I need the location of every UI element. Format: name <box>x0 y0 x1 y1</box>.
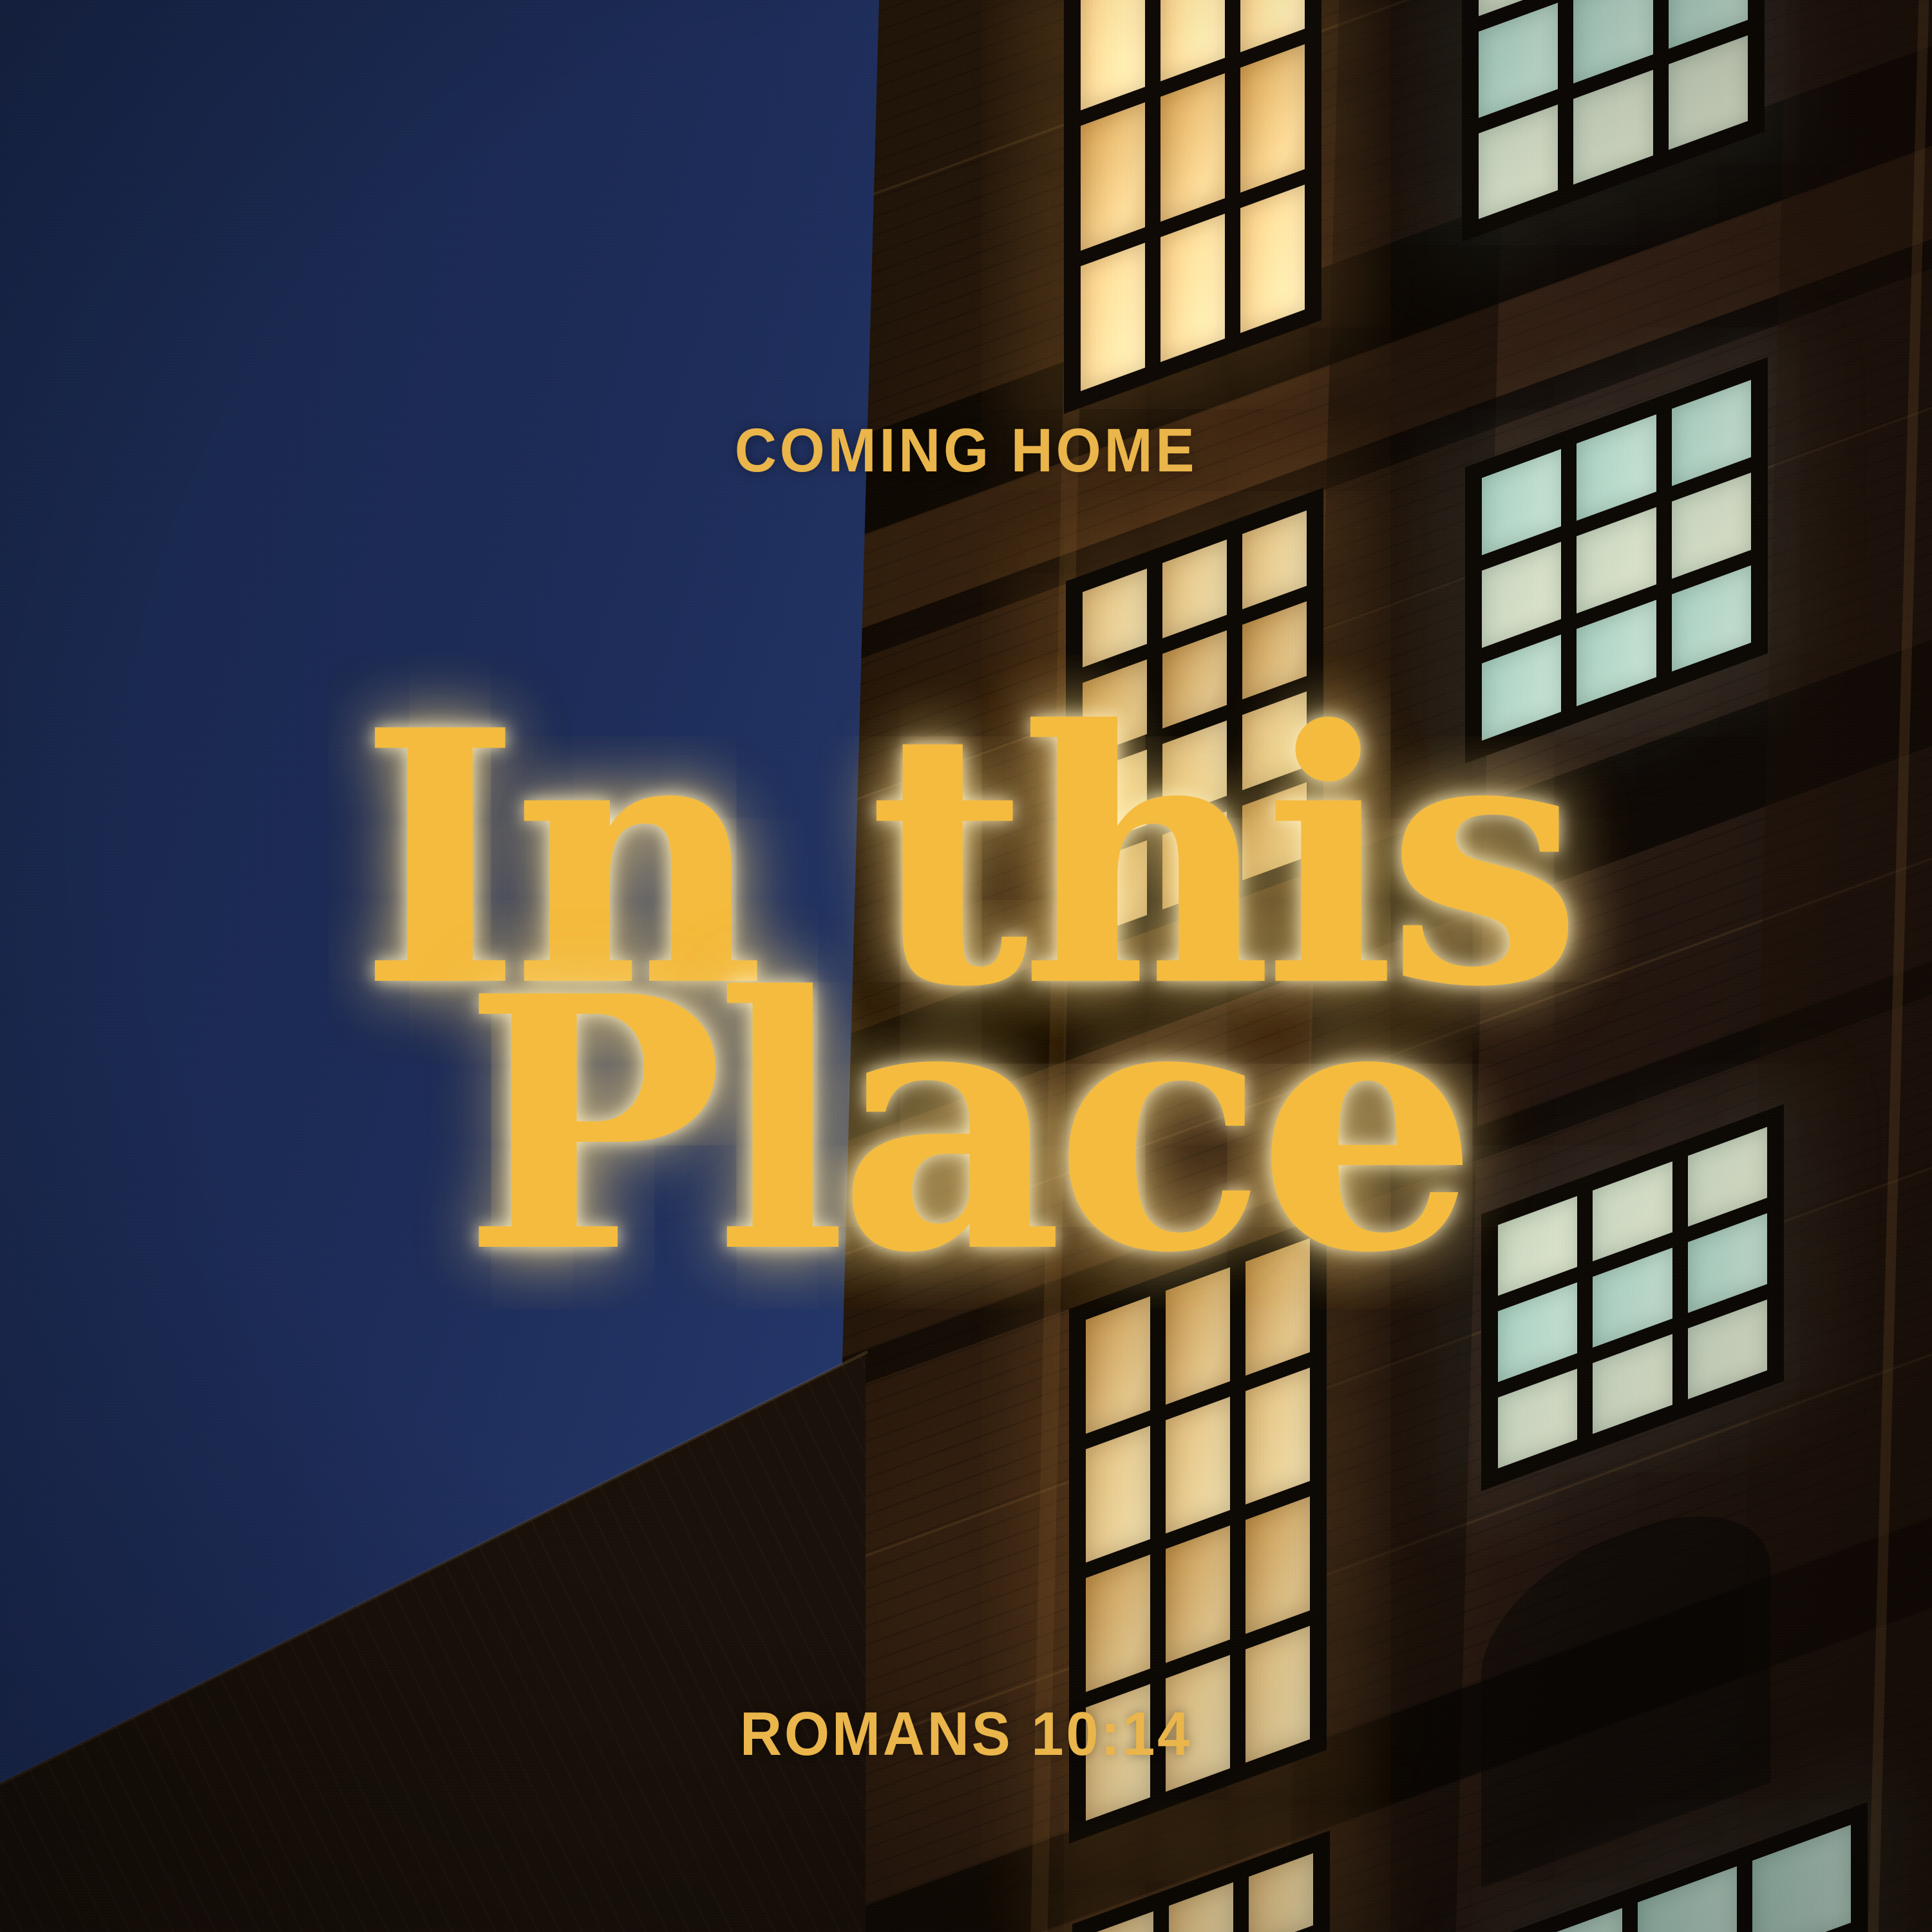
scripture-reference-text: ROMANS 10:14 <box>58 1703 1874 1765</box>
poster-canvas: COMING HOME In this Place ROMANS 10:14 <box>0 0 1932 1932</box>
title-line-2: Place <box>0 992 1932 1258</box>
series-title: In this Place <box>0 726 1932 1258</box>
series-eyebrow-text: COMING HOME <box>58 420 1874 482</box>
